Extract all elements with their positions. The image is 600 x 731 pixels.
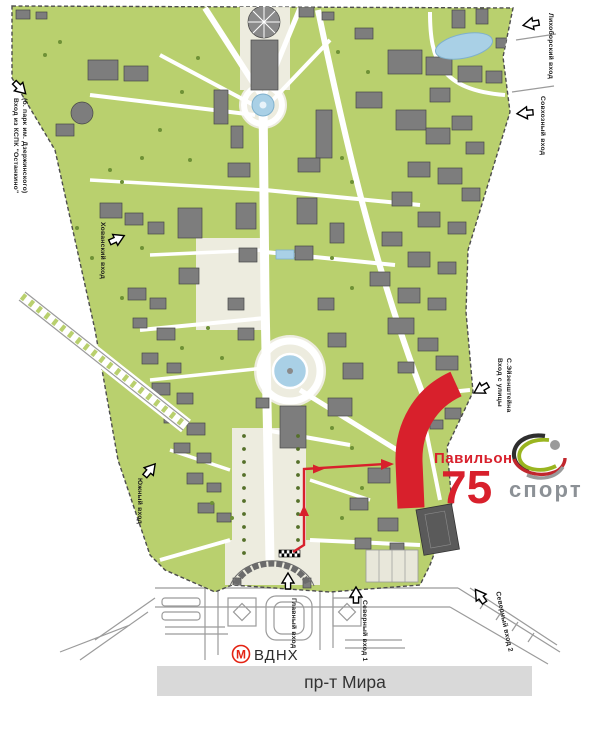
likhoborsky-entrance-label: Лихоборский вход — [547, 13, 555, 79]
parking-grid — [366, 550, 418, 582]
sovkhozny-entrance-arrow — [517, 106, 534, 119]
pool — [276, 250, 294, 259]
route-start-checker — [279, 550, 300, 557]
north2-entrance-arrow — [470, 586, 489, 606]
sport-logo: спорт — [509, 436, 583, 502]
kspk-entrance-label-1: Вход из КСПК "Останкино" — [12, 98, 19, 193]
likhoborsky-entrance-arrow — [522, 17, 540, 32]
khovansky-entrance-label: Хованский вход — [99, 222, 107, 279]
metro-symbol: М — [236, 648, 246, 662]
main-entrance-label: Главный вход — [290, 598, 298, 649]
eisenstein-entrance-arrow — [471, 380, 491, 398]
metro-station-label: ВДНХ — [254, 647, 299, 664]
vdnkh-map-page: Вход из КСПК "Останкино" (б. парк им. Дз… — [0, 0, 600, 731]
pavilion-75-number: 75 — [441, 461, 492, 513]
north1-entrance-label: Северный вход 1 — [361, 600, 369, 662]
sovkhozny-entrance-label: Совхозный вход — [539, 96, 547, 156]
street-band: пр-т Мира — [157, 666, 532, 696]
kspk-entrance-label-2: (б. парк им. Дзержинского) — [21, 98, 29, 193]
south-entrance-label: Южный вход — [136, 478, 144, 525]
vdnkh-map: Вход из КСПК "Останкино" (б. парк им. Дз… — [0, 0, 600, 731]
metro-badge: М ВДНХ — [233, 646, 299, 665]
eisenstein-entrance-label-1: Вход с улицы — [496, 358, 503, 407]
sport-logo-word: спорт — [509, 477, 583, 502]
eisenstein-entrance-label-2: С.Эйзенштейна — [505, 358, 513, 412]
sport-logo-dot — [550, 440, 560, 450]
street-band-label: пр-т Мира — [304, 672, 386, 692]
